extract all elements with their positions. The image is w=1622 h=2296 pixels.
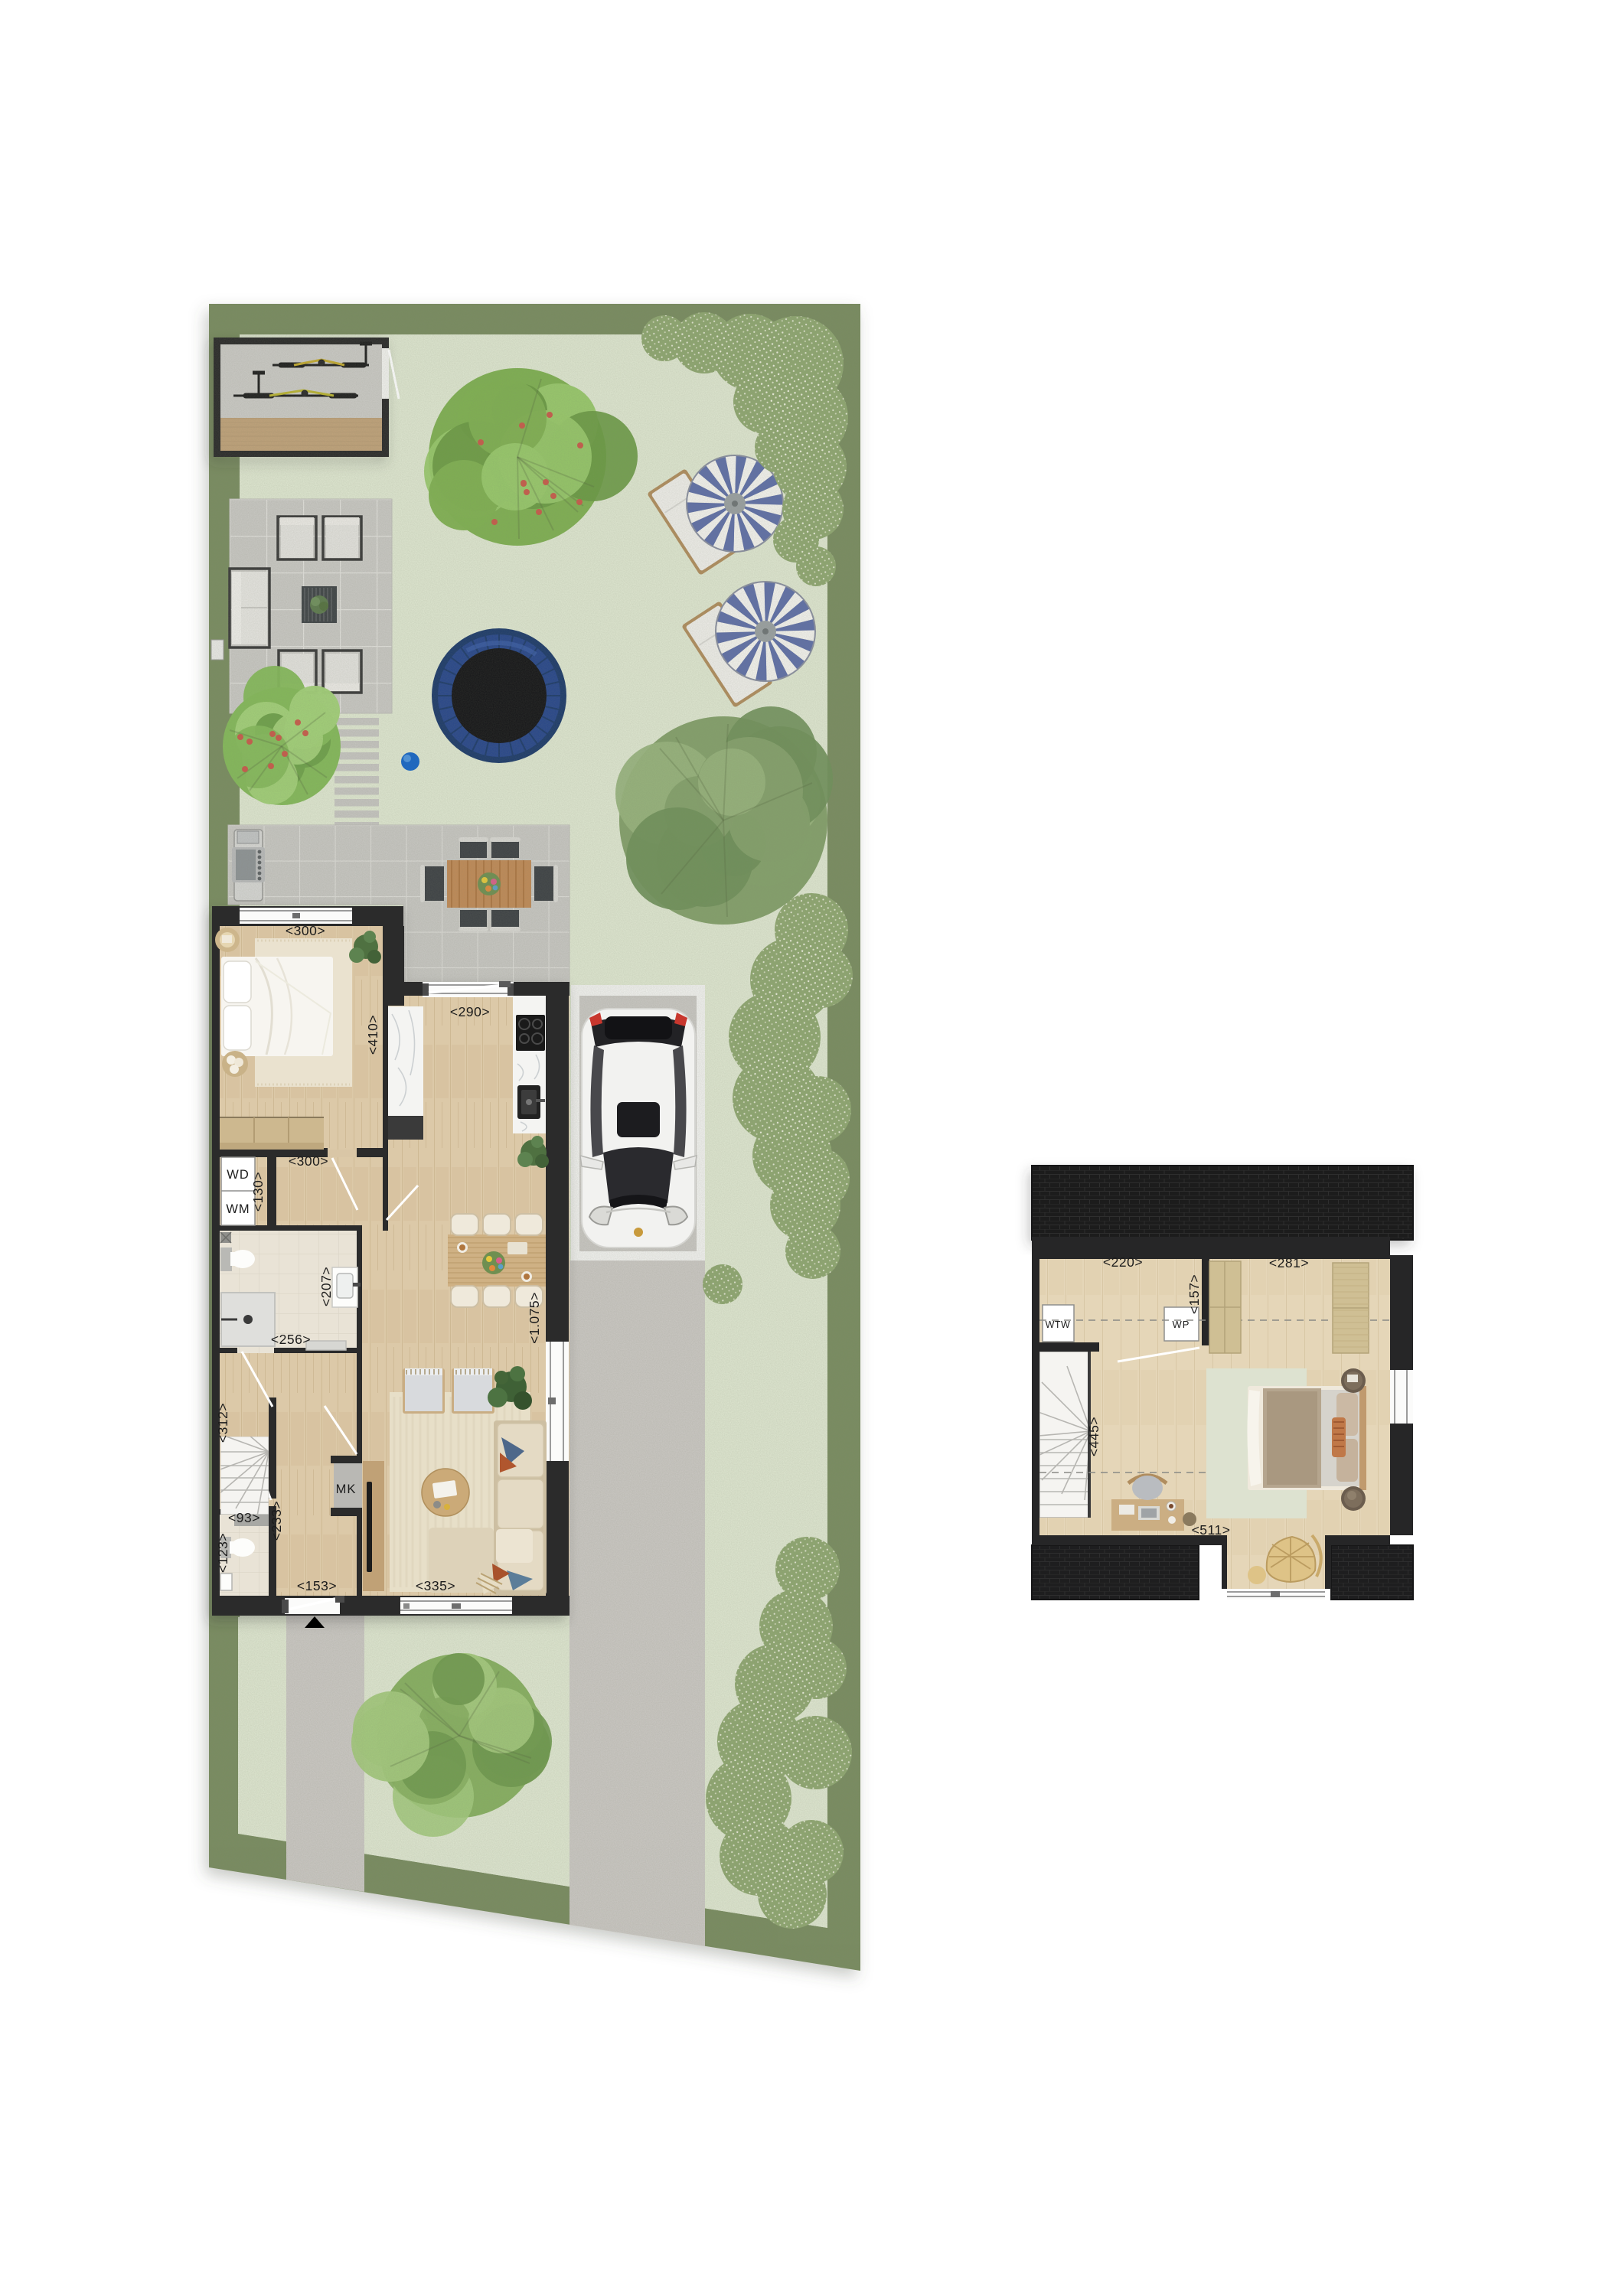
svg-text:<445>: <445>: [1086, 1417, 1101, 1456]
svg-text:<207>: <207>: [318, 1267, 334, 1306]
svg-text:WM: WM: [226, 1202, 250, 1216]
svg-text:MK: MK: [336, 1482, 357, 1496]
svg-text:WTW: WTW: [1046, 1319, 1071, 1330]
svg-text:<256>: <256>: [271, 1332, 311, 1347]
svg-text:<290>: <290>: [450, 1004, 490, 1019]
svg-text:<312>: <312>: [215, 1403, 230, 1443]
svg-text:WD: WD: [227, 1168, 250, 1182]
svg-text:<157>: <157>: [1186, 1274, 1202, 1314]
svg-text:<335>: <335>: [416, 1578, 455, 1593]
svg-text:<281>: <281>: [1269, 1255, 1309, 1270]
svg-text:<130>: <130>: [250, 1172, 266, 1212]
svg-text:<410>: <410>: [365, 1015, 380, 1055]
svg-text:<123>: <123>: [215, 1533, 230, 1573]
svg-text:<300>: <300>: [286, 923, 325, 938]
svg-text:<1.075>: <1.075>: [527, 1292, 542, 1344]
svg-text:<233>: <233>: [269, 1501, 284, 1541]
svg-text:<153>: <153>: [297, 1578, 337, 1593]
svg-text:<220>: <220>: [1103, 1254, 1143, 1270]
svg-text:<93>: <93>: [228, 1510, 260, 1525]
svg-text:<300>: <300>: [289, 1153, 328, 1169]
svg-text:<511>: <511>: [1192, 1522, 1231, 1538]
